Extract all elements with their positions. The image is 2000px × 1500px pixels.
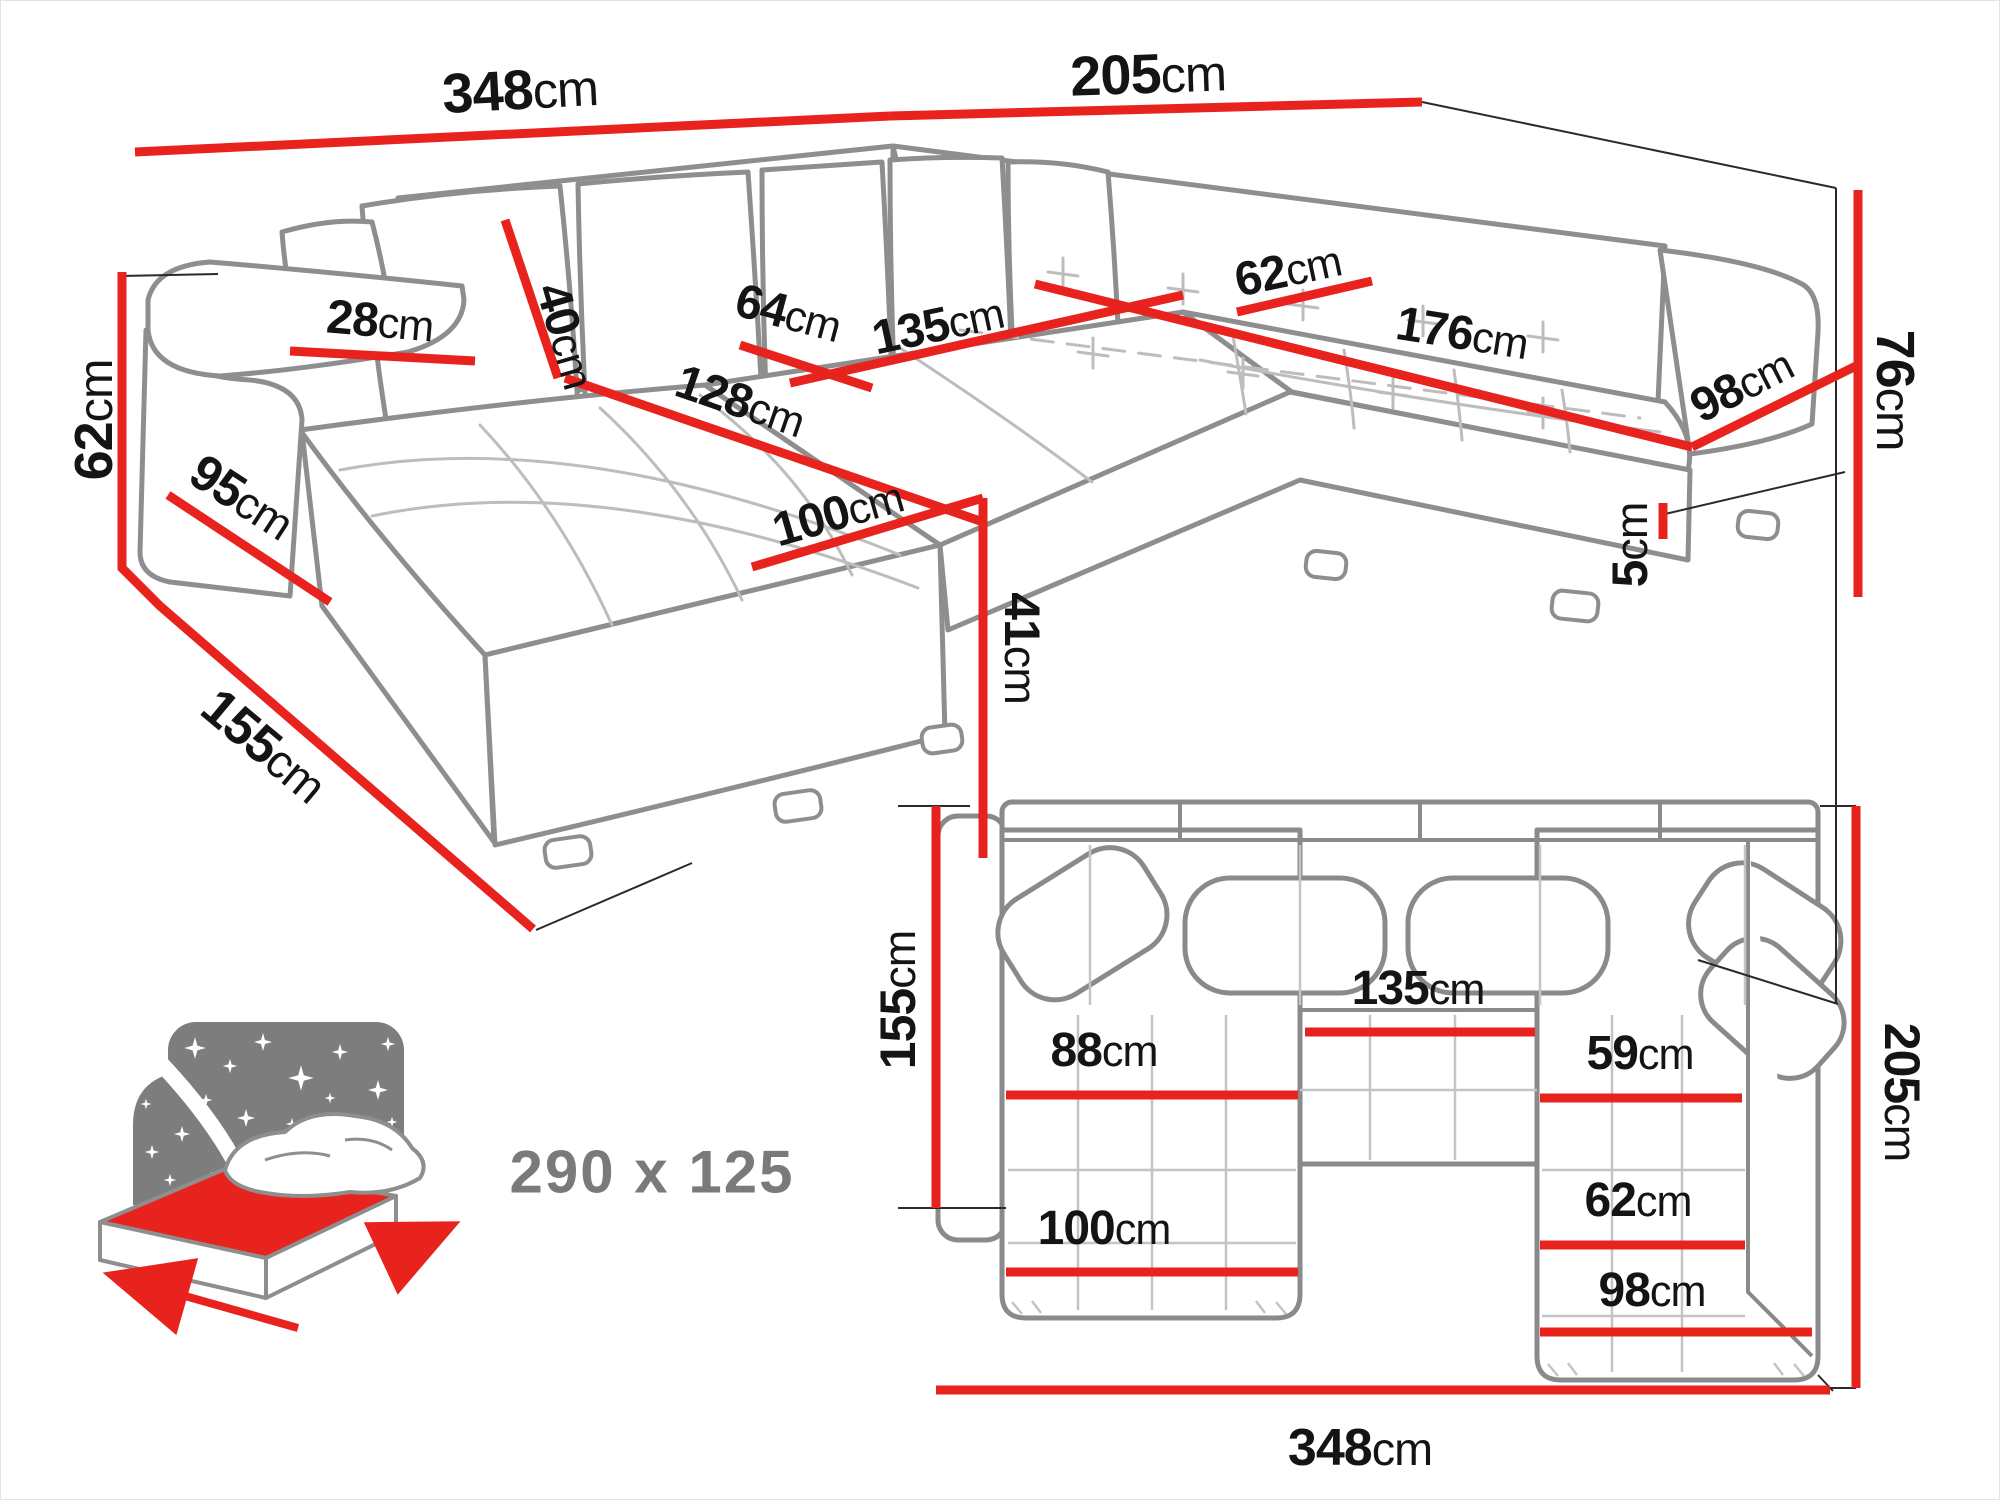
dim-leg-height: 5cm	[1605, 503, 1655, 588]
dim-plan-corner-seat: 59cm	[1587, 1030, 1694, 1078]
dim-plan-right-width: 98cm	[1599, 1267, 1706, 1315]
dim-armrest-width: 28cm	[325, 293, 436, 350]
dim-plan-chaise-width: 100cm	[1038, 1205, 1171, 1253]
plan-left-armrest	[938, 816, 1006, 1240]
dim-plan-left-depth: 155cm	[873, 931, 923, 1069]
dim-plan-right-seat: 62cm	[1585, 1177, 1692, 1225]
dim-plan-right-depth: 205cm	[1877, 1023, 1927, 1161]
dimension-diagram: 348cm 205cm 76cm 5cm 62cm 95cm 28cm 155c…	[0, 0, 2000, 1500]
dim-armrest-height: 62cm	[67, 360, 121, 481]
dim-right-depth: 205cm	[1069, 43, 1226, 104]
dim-backrest-height: 76cm	[1868, 330, 1922, 451]
dim-plan-total-width: 348cm	[1288, 1422, 1432, 1474]
dim-plan-chaise-seat: 88cm	[1051, 1027, 1158, 1075]
sleeping-area-size-label: 290 x 125	[510, 1138, 795, 1207]
sleeping-function-icon	[100, 1022, 446, 1328]
dim-plan-middle-seat: 135cm	[1352, 965, 1485, 1013]
dim-total-width: 348cm	[441, 58, 599, 122]
dim-seat-height: 41cm	[997, 592, 1047, 704]
